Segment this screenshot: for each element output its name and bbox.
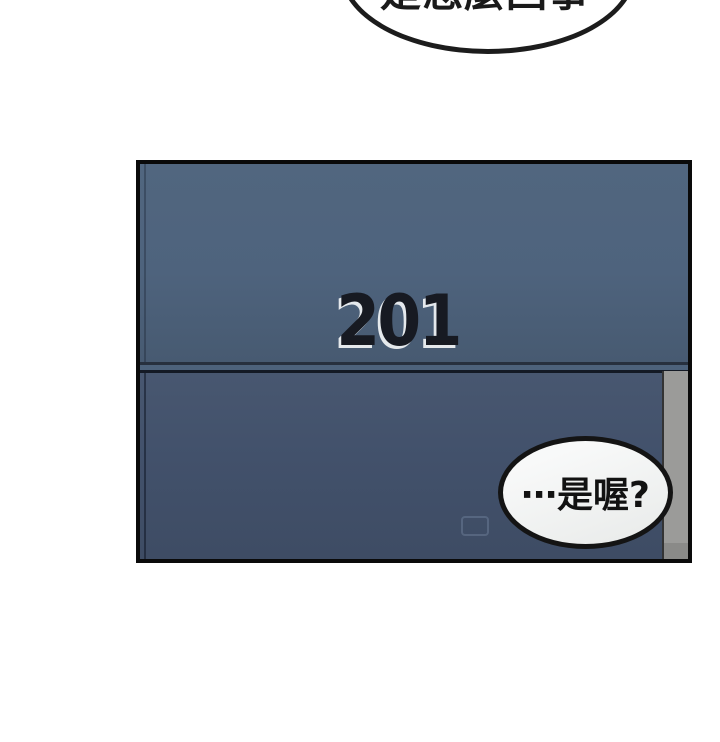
room-number: 201: [272, 286, 524, 356]
door-frame-line-upper: [144, 164, 146, 362]
top-speech-bubble-text: 是怎麼回事: [325, 0, 645, 16]
door-handle-outline: [461, 516, 489, 536]
speech-bubble-text: ⋯是喔?: [521, 466, 650, 520]
speech-bubble: ⋯是喔?: [498, 436, 673, 549]
door-frame-line-lower: [144, 373, 146, 559]
comic-page: 是怎麼回事 201 ⋯是喔?: [0, 0, 720, 742]
comic-panel: 201 ⋯是喔?: [136, 160, 692, 563]
door-frame-strip-bottom: [664, 543, 688, 559]
door-frame-strip: [662, 371, 688, 559]
